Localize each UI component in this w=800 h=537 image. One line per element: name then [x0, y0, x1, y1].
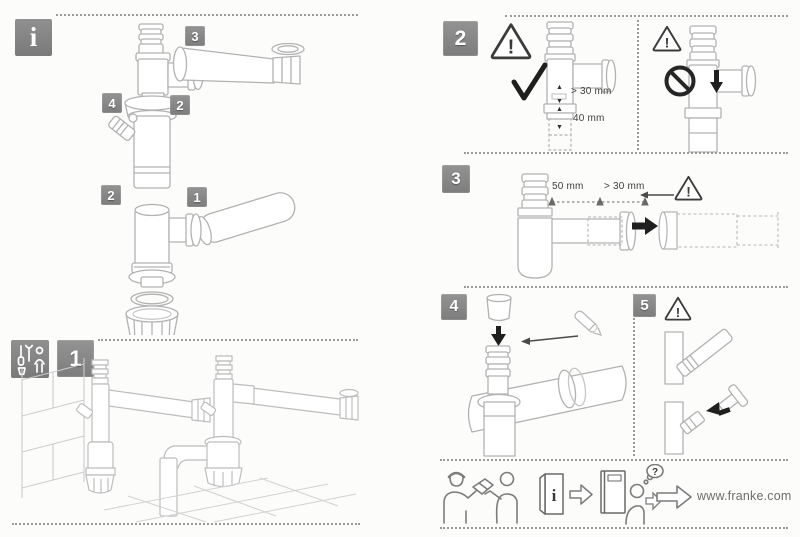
- wall-outlet-illustration: [640, 325, 790, 458]
- part-badge-2-lower: 2: [101, 185, 121, 205]
- divider-step2-vertical: [637, 20, 639, 150]
- lubricant-pen-icon: [573, 310, 604, 339]
- arrow-down-icon: [491, 326, 506, 346]
- instruction-sheet: ! i: [0, 0, 800, 537]
- check-icon: [514, 65, 545, 98]
- divider-step2-step3: [464, 152, 788, 154]
- dim-arrow-down-icon: ▼: [556, 124, 563, 131]
- leaflet-info-glyph: i: [552, 486, 557, 505]
- siphon-correct-illustration: [505, 18, 635, 153]
- dim-arrow-down-icon: ▼: [556, 98, 563, 105]
- dimension-label: > 30 mm: [604, 181, 645, 192]
- dim-arrow-up-icon: ▲: [556, 84, 563, 91]
- website-url: www.franke.com: [697, 489, 792, 503]
- part-badge-3: 3: [185, 26, 205, 46]
- divider-footer-top: [440, 459, 788, 461]
- divider-step3-step4: [464, 286, 788, 288]
- step-5-badge: 5: [633, 294, 656, 317]
- dim-arrow-up-icon: ▲: [556, 106, 563, 113]
- installed-view-illustration: [8, 350, 360, 525]
- part-badge-4: 4: [102, 93, 122, 113]
- divider-footer-bottom: [440, 527, 788, 529]
- hose-connection-illustration: [460, 290, 632, 458]
- siphon-wrong-illustration: [640, 18, 790, 153]
- arrow-left-icon: [521, 336, 578, 345]
- footer-handover-icon: [440, 466, 530, 524]
- part-badge-1: 1: [187, 187, 207, 207]
- dimension-label: 50 mm: [552, 181, 584, 192]
- divider-top-right: [505, 15, 788, 17]
- part-badge-2-upper: 2: [170, 95, 190, 115]
- divider-bottom-left: [12, 523, 360, 525]
- step-2-badge: 2: [443, 21, 478, 56]
- divider-step1-top: [98, 339, 358, 341]
- arrow-right-outline-icon: [655, 483, 693, 511]
- exploded-view-illustration: [30, 15, 360, 335]
- warning-triangle-icon: [664, 296, 692, 321]
- dimension-label: 40 mm: [573, 113, 605, 124]
- divider-step4-step5: [633, 294, 635, 456]
- dimension-label: > 30 mm: [571, 86, 612, 97]
- info-leaflet-icon: i: [537, 471, 567, 517]
- question-glyph: ?: [652, 467, 658, 478]
- arrow-right-outline-icon: [569, 482, 594, 507]
